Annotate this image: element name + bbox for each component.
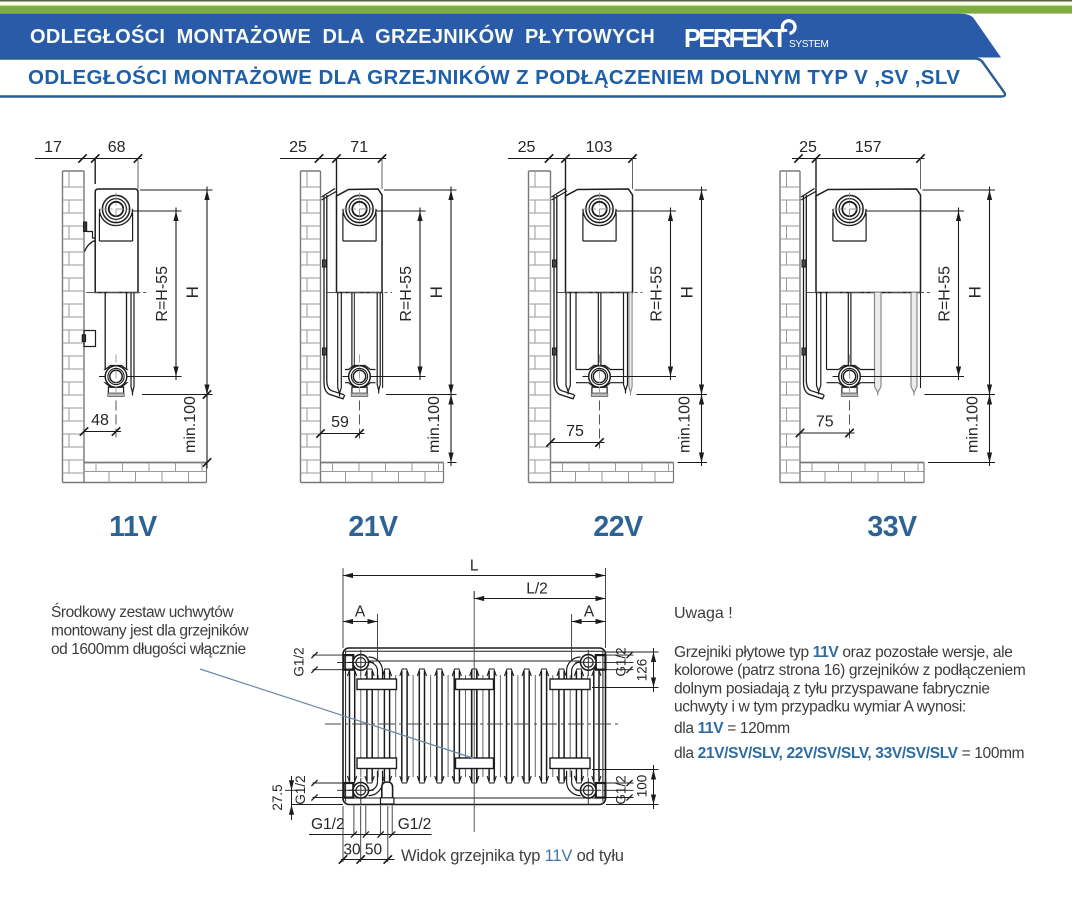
svg-text:71: 71 <box>350 139 368 156</box>
svg-text:33V: 33V <box>867 511 917 543</box>
svg-text:157: 157 <box>855 139 882 156</box>
svg-text:A: A <box>355 604 366 621</box>
svg-text:R=H-55: R=H-55 <box>649 266 666 322</box>
svg-text:SYSTEM: SYSTEM <box>789 39 829 50</box>
svg-text:PERFEKT: PERFEKT <box>684 25 788 53</box>
svg-text:dla 11V = 120mm: dla 11V = 120mm <box>674 720 790 737</box>
svg-text:11V: 11V <box>109 511 157 543</box>
svg-text:75: 75 <box>816 414 834 431</box>
svg-text:L/2: L/2 <box>526 581 548 598</box>
svg-text:min.100: min.100 <box>677 396 694 453</box>
svg-text:Uwaga !: Uwaga ! <box>674 605 733 622</box>
svg-text:25: 25 <box>518 139 536 156</box>
svg-text:H: H <box>183 286 202 298</box>
svg-text:L: L <box>470 558 479 575</box>
svg-text:25: 25 <box>799 139 817 156</box>
svg-text:Widok grzejnika typ 11V od tył: Widok grzejnika typ 11V od tyłu <box>401 847 624 865</box>
svg-text:min.100: min.100 <box>965 396 982 453</box>
svg-text:50: 50 <box>365 842 383 859</box>
svg-text:min.100: min.100 <box>426 396 443 453</box>
svg-text:126: 126 <box>635 659 650 682</box>
svg-text:68: 68 <box>108 139 126 156</box>
svg-text:dla 21V/SV/SLV, 22V/SV/SLV, 33: dla 21V/SV/SLV, 22V/SV/SLV, 33V/SV/SLV =… <box>674 745 1024 762</box>
svg-text:17: 17 <box>44 139 62 156</box>
svg-text:59: 59 <box>331 414 349 431</box>
svg-text:25: 25 <box>289 139 307 156</box>
svg-text:30: 30 <box>343 842 361 859</box>
svg-text:G1/2: G1/2 <box>311 816 345 833</box>
svg-text:R=H-55: R=H-55 <box>154 266 171 322</box>
svg-text:Środkowy zestaw uchwytów monto: Środkowy zestaw uchwytów montowany jest … <box>51 603 252 658</box>
svg-text:103: 103 <box>586 139 613 156</box>
svg-text:48: 48 <box>91 412 109 429</box>
svg-text:ODLEGŁOŚCI MONTAŻOWE DLA GR: ODLEGŁOŚCI MONTAŻOWE DLA GRZEJNIKÓW PŁYT… <box>30 24 655 48</box>
svg-text:ODLEGŁOŚCI MONTAŻOWE DLA GRZEJ: ODLEGŁOŚCI MONTAŻOWE DLA GRZEJNIKÓW Z PO… <box>28 65 960 89</box>
svg-text:G1/2: G1/2 <box>614 775 629 804</box>
svg-text:Grzejniki płytowe typ 11V oraz: Grzejniki płytowe typ 11V oraz pozostałe… <box>674 644 1029 716</box>
svg-text:22V: 22V <box>593 511 643 543</box>
svg-text:H: H <box>678 286 697 298</box>
svg-text:R=H-55: R=H-55 <box>398 266 415 322</box>
svg-text:H: H <box>427 286 446 298</box>
svg-text:75: 75 <box>566 423 584 440</box>
svg-text:min.100: min.100 <box>182 396 199 453</box>
svg-text:21V: 21V <box>348 511 398 543</box>
svg-text:100: 100 <box>635 775 650 798</box>
svg-text:A: A <box>584 604 595 621</box>
svg-text:G1/2: G1/2 <box>292 647 307 676</box>
svg-text:H: H <box>966 286 985 298</box>
svg-text:27.5: 27.5 <box>270 784 285 810</box>
svg-text:G1/2: G1/2 <box>398 816 432 833</box>
svg-text:R=H-55: R=H-55 <box>937 266 954 322</box>
